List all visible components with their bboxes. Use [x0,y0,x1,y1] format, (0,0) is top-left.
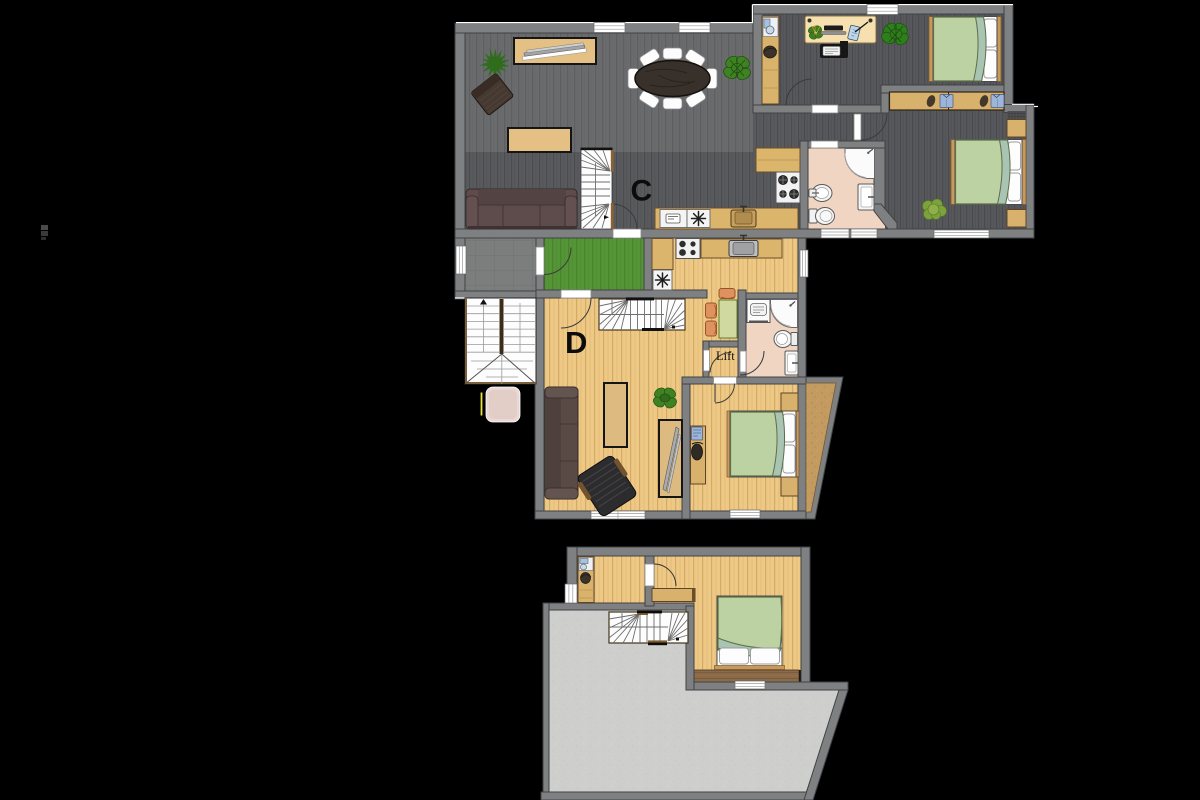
svg-text:D: D [565,325,587,360]
svg-text:C: C [631,175,653,208]
svg-text:Lift: Lift [716,349,735,363]
